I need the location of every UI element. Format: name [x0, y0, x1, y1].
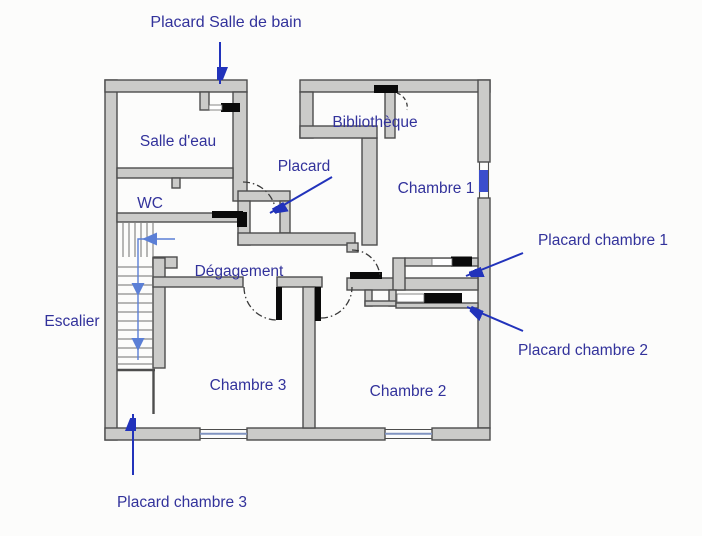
placard-ch2-track — [397, 294, 424, 302]
chambre3-door-arc — [244, 287, 277, 320]
wall-wc-door-stub — [172, 178, 180, 188]
wall-degagement-south-middle — [277, 277, 322, 287]
wall-void-east — [362, 138, 377, 245]
wc-door — [212, 211, 243, 218]
label-placard-chambre-2: Placard chambre 2 — [518, 342, 648, 359]
placard-ch1-sliding-door — [451, 257, 472, 267]
wall-chambre1-chambre2-divider — [347, 278, 478, 290]
label-salle-deau: Salle d'eau — [140, 133, 216, 150]
chambre2-door-arc — [321, 287, 352, 318]
wall-center-south — [238, 233, 355, 245]
label-wc: WC — [137, 195, 163, 212]
label-degagement: Dégagement — [195, 263, 284, 280]
wall-salle-deau-south — [117, 168, 233, 178]
wall-bath-closet-stub — [200, 92, 209, 110]
chambre2-door — [315, 287, 321, 321]
bibliotheque-door — [374, 85, 398, 93]
wall-placard-top — [238, 191, 290, 201]
floor-plan-drawing: Placard Salle de bain Salle d'eau Biblio… — [0, 0, 702, 536]
label-escalier: Escalier — [44, 313, 99, 330]
wall-placard-ch1-stub — [393, 258, 405, 290]
label-placard-salle-de-bain: Placard Salle de bain — [150, 14, 301, 31]
chambre3-door — [276, 287, 282, 320]
window-chambre1 — [479, 162, 489, 198]
label-chambre-1: Chambre 1 — [398, 180, 475, 197]
wall-outer-bottom-right — [432, 428, 490, 440]
staircase — [118, 223, 175, 364]
stair-arrow-down2-icon — [132, 338, 145, 351]
wall-placard-ch2-bottom — [396, 303, 478, 308]
floor-plan-page: Placard Salle de bain Salle d'eau Biblio… — [0, 0, 702, 536]
bibliotheque-door-arc — [397, 93, 407, 110]
wall-chambre2-chambre3-divider — [303, 287, 315, 428]
label-bibliotheque: Bibliothèque — [332, 114, 417, 131]
placard-ch2-sliding-door — [424, 293, 462, 303]
stair-arrow-left-icon — [142, 233, 157, 246]
window-chambre3 — [200, 430, 247, 439]
label-chambre-2: Chambre 2 — [370, 383, 447, 400]
wall-outer-left — [105, 80, 117, 440]
label-placard-chambre-1: Placard chambre 1 — [538, 232, 668, 249]
placard-ch1-track — [432, 259, 452, 266]
label-chambre-3: Chambre 3 — [210, 377, 287, 394]
wall-outer-top-left — [105, 80, 247, 92]
wall-duct-bottom — [365, 301, 396, 306]
wall-stair-right — [153, 258, 165, 368]
window-chambre2 — [385, 430, 432, 439]
placard-chambre3-partition — [117, 370, 155, 414]
chambre1-door — [350, 272, 382, 279]
wall-outer-bottom-left — [105, 428, 200, 440]
bath-closet-door — [221, 103, 240, 112]
stair-treads-lower-flight — [118, 267, 153, 364]
wall-outer-right-upper — [478, 80, 490, 162]
wall-outer-bottom-middle — [247, 428, 385, 440]
label-placard-chambre-3: Placard chambre 3 — [117, 494, 247, 511]
bath-closet-track — [209, 105, 222, 110]
arrow-placard-chambre2-icon — [467, 307, 523, 331]
label-placard: Placard — [278, 158, 331, 175]
